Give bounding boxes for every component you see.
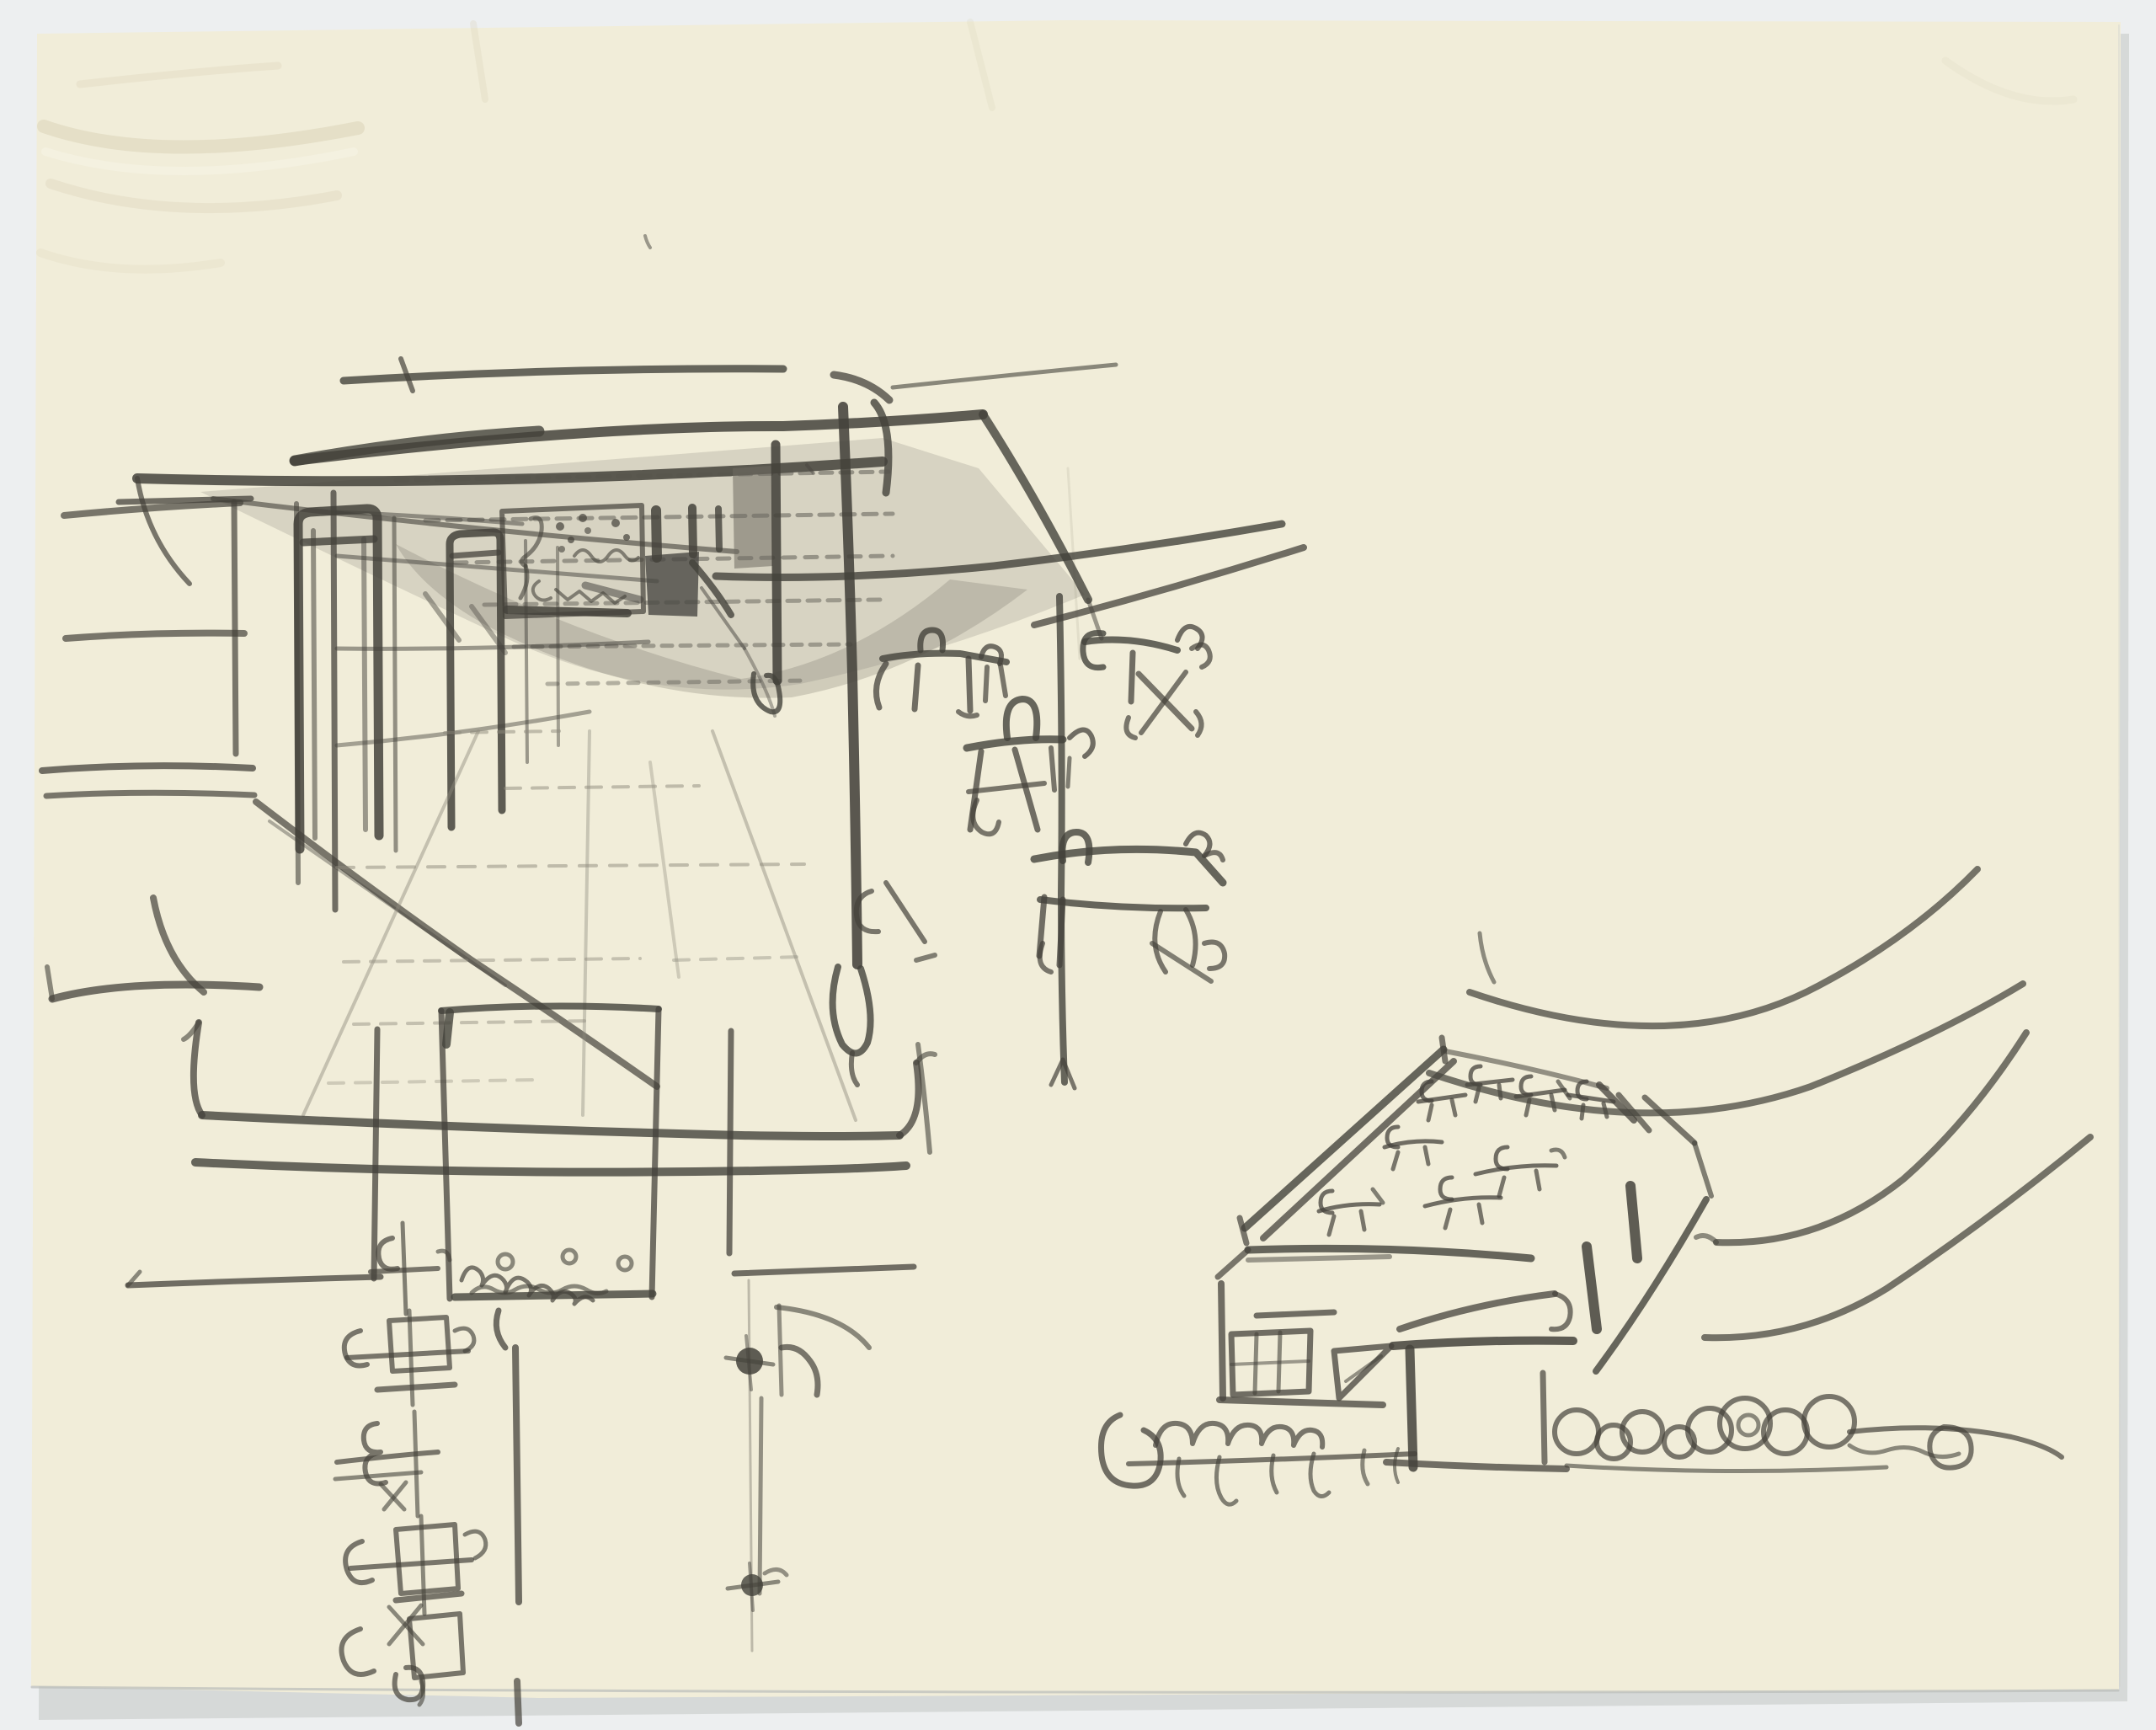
sketch-svg [0, 0, 2156, 1730]
scanned-sketch-page [0, 0, 2156, 1730]
